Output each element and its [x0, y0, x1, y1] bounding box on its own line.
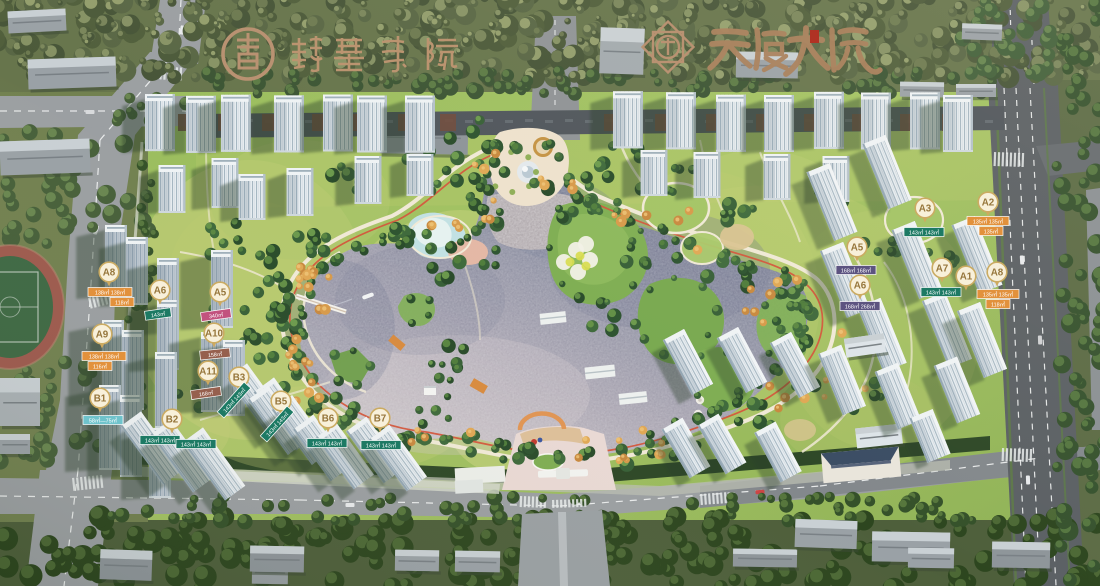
svg-text:A3: A3 [919, 203, 932, 214]
svg-text:B5: B5 [275, 396, 288, 407]
svg-text:B3: B3 [233, 372, 246, 383]
svg-text:143㎡ 143㎡: 143㎡ 143㎡ [926, 288, 957, 296]
svg-text:138㎡ 138㎡: 138㎡ 138㎡ [95, 288, 126, 296]
svg-text:A6: A6 [854, 280, 867, 291]
svg-text:116㎡: 116㎡ [93, 362, 108, 370]
svg-text:B7: B7 [374, 413, 387, 424]
svg-text:A5: A5 [851, 242, 864, 253]
svg-text:A11: A11 [199, 366, 217, 377]
svg-text:118㎡: 118㎡ [991, 300, 1006, 308]
svg-text:118㎡: 118㎡ [115, 298, 130, 306]
svg-text:143㎡ 143㎡: 143㎡ 143㎡ [312, 439, 343, 447]
svg-text:143㎡ 143㎡: 143㎡ 143㎡ [181, 440, 212, 448]
svg-text:A1: A1 [960, 271, 973, 282]
svg-text:168㎡ 268㎡: 168㎡ 268㎡ [845, 302, 876, 310]
svg-text:138㎡ 138㎡: 138㎡ 138㎡ [89, 352, 120, 360]
svg-text:135㎡: 135㎡ [984, 227, 999, 235]
svg-text:B1: B1 [94, 393, 107, 404]
svg-text:58㎡—75㎡: 58㎡—75㎡ [89, 416, 118, 424]
svg-text:B6: B6 [322, 413, 335, 424]
svg-text:143㎡ 143㎡: 143㎡ 143㎡ [909, 228, 940, 236]
svg-text:A5: A5 [214, 287, 227, 298]
svg-text:135㎡ 135㎡: 135㎡ 135㎡ [973, 217, 1004, 225]
svg-text:143㎡ 143㎡: 143㎡ 143㎡ [145, 436, 176, 444]
svg-text:A8: A8 [103, 267, 116, 278]
svg-text:A10: A10 [205, 328, 224, 339]
svg-text:A2: A2 [982, 197, 995, 208]
svg-text:A8: A8 [991, 267, 1004, 278]
svg-text:B2: B2 [166, 414, 179, 425]
svg-text:A6: A6 [154, 285, 167, 296]
svg-text:168㎡ 168㎡: 168㎡ 168㎡ [841, 266, 872, 274]
svg-text:143㎡ 143㎡: 143㎡ 143㎡ [366, 441, 397, 449]
svg-text:A7: A7 [936, 263, 949, 274]
svg-text:135㎡ 135㎡: 135㎡ 135㎡ [983, 290, 1014, 298]
svg-text:A9: A9 [96, 329, 109, 340]
